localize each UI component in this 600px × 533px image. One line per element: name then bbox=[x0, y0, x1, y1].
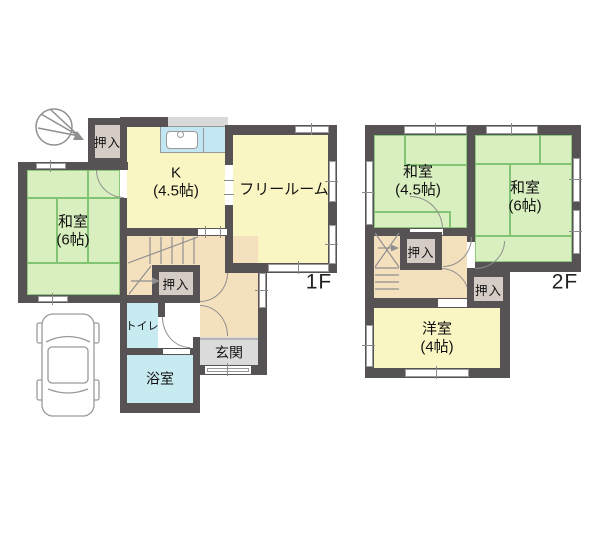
window bbox=[366, 161, 373, 225]
wall bbox=[365, 232, 374, 308]
window bbox=[295, 126, 329, 133]
window-tick bbox=[227, 363, 228, 376]
closet-label: 押入 bbox=[475, 280, 502, 299]
window-tick bbox=[50, 160, 51, 172]
door-opening bbox=[438, 299, 469, 307]
window bbox=[405, 369, 469, 377]
tatami-line bbox=[449, 211, 451, 228]
window-tick bbox=[511, 123, 512, 136]
closet-b-2f: 押入 bbox=[467, 270, 510, 308]
window-tick bbox=[52, 293, 53, 305]
room-name: 和室 bbox=[510, 179, 540, 196]
window-tick bbox=[569, 231, 582, 232]
wall bbox=[193, 337, 200, 413]
room-label-washitsu6: 和室 (6帖) bbox=[508, 179, 541, 214]
kitchen-counter-edge bbox=[160, 117, 228, 127]
faucet-icon bbox=[177, 131, 184, 138]
wall bbox=[120, 198, 127, 303]
wall bbox=[467, 135, 475, 228]
tatami-line bbox=[27, 197, 120, 199]
closet-label: 押入 bbox=[94, 132, 121, 151]
floor-label-text: 1F bbox=[306, 271, 333, 294]
sliding-door-opening bbox=[225, 165, 233, 205]
window bbox=[573, 158, 580, 202]
room-name: 和室 bbox=[58, 213, 88, 230]
window-tick bbox=[224, 180, 234, 181]
tatami-line bbox=[27, 262, 120, 264]
wall bbox=[18, 162, 27, 303]
room-size: (4.5帖) bbox=[153, 182, 199, 199]
wall bbox=[500, 298, 510, 378]
wall bbox=[120, 303, 127, 413]
window bbox=[38, 296, 68, 302]
room-size: (6帖) bbox=[508, 197, 541, 214]
entrance-step-line bbox=[200, 338, 258, 340]
tatami-line bbox=[475, 235, 572, 237]
north-arrow-icon bbox=[36, 109, 84, 145]
closet-label: 押入 bbox=[162, 274, 189, 293]
room-name: 玄関 bbox=[215, 345, 243, 361]
window-tick bbox=[298, 261, 299, 274]
closet-a-2f: 押入 bbox=[400, 232, 442, 270]
room-label-entrance: 玄関 bbox=[215, 345, 243, 362]
room-name: 和室 bbox=[403, 163, 433, 180]
window-tick bbox=[436, 366, 437, 379]
window-tick bbox=[362, 345, 375, 346]
window-tick bbox=[224, 194, 234, 195]
window-tick bbox=[325, 244, 338, 245]
room-label-western: 洋室 (4帖) bbox=[420, 320, 453, 355]
door-opening bbox=[163, 349, 190, 354]
room-name: 洋室 bbox=[422, 320, 452, 337]
room-size: (6帖) bbox=[56, 231, 89, 248]
room-name: K bbox=[171, 164, 181, 181]
car-icon bbox=[37, 314, 99, 416]
wall bbox=[365, 125, 581, 135]
floor-1-label: 1F bbox=[306, 271, 333, 296]
wall bbox=[158, 303, 165, 317]
window bbox=[366, 325, 373, 367]
window bbox=[36, 163, 66, 169]
wall bbox=[225, 205, 233, 272]
room-name: 浴室 bbox=[146, 371, 174, 387]
room-label-washitsu45: 和室 (4.5帖) bbox=[395, 163, 441, 198]
counter-divider bbox=[203, 128, 204, 153]
window-tick bbox=[220, 226, 221, 238]
room-size: (4.5帖) bbox=[395, 181, 441, 198]
closet-mid-1f: 押入 bbox=[152, 265, 200, 302]
closet-label: 押入 bbox=[407, 242, 434, 261]
entrance-door bbox=[207, 368, 249, 372]
window-tick bbox=[205, 226, 206, 238]
window-tick bbox=[435, 123, 436, 136]
room-label-washitsu-1f: 和室 (6帖) bbox=[56, 213, 89, 248]
room-name: フリールーム bbox=[239, 181, 329, 198]
window-tick bbox=[255, 290, 268, 291]
room-label-toilet: トイレ bbox=[126, 321, 159, 334]
tatami-line bbox=[539, 135, 541, 163]
floor-label-text: 2F bbox=[552, 271, 579, 294]
wall bbox=[120, 403, 200, 413]
room-name: トイレ bbox=[126, 321, 159, 333]
room-label-free-room: フリールーム bbox=[239, 181, 329, 199]
wall bbox=[120, 117, 168, 127]
room-label-bath: 浴室 bbox=[146, 371, 174, 388]
tatami-line bbox=[404, 135, 406, 165]
floor-2-label: 2F bbox=[552, 271, 579, 296]
closet-top-1f: 押入 bbox=[88, 118, 127, 165]
window bbox=[486, 126, 538, 134]
window-tick bbox=[311, 123, 312, 135]
window-tick bbox=[362, 192, 375, 193]
room-label-kitchen: K (4.5帖) bbox=[153, 164, 199, 199]
tatami-line bbox=[87, 170, 89, 198]
tatami-line bbox=[475, 163, 572, 165]
window-tick bbox=[569, 179, 582, 180]
sliding-door-opening bbox=[198, 229, 227, 235]
window bbox=[573, 210, 580, 254]
floor-plan-canvas: 押入 押入 K (4.5帖) フリールーム 和室 (6帖) トイレ 浴室 玄関 … bbox=[0, 0, 600, 533]
room-size: (4帖) bbox=[420, 338, 453, 355]
